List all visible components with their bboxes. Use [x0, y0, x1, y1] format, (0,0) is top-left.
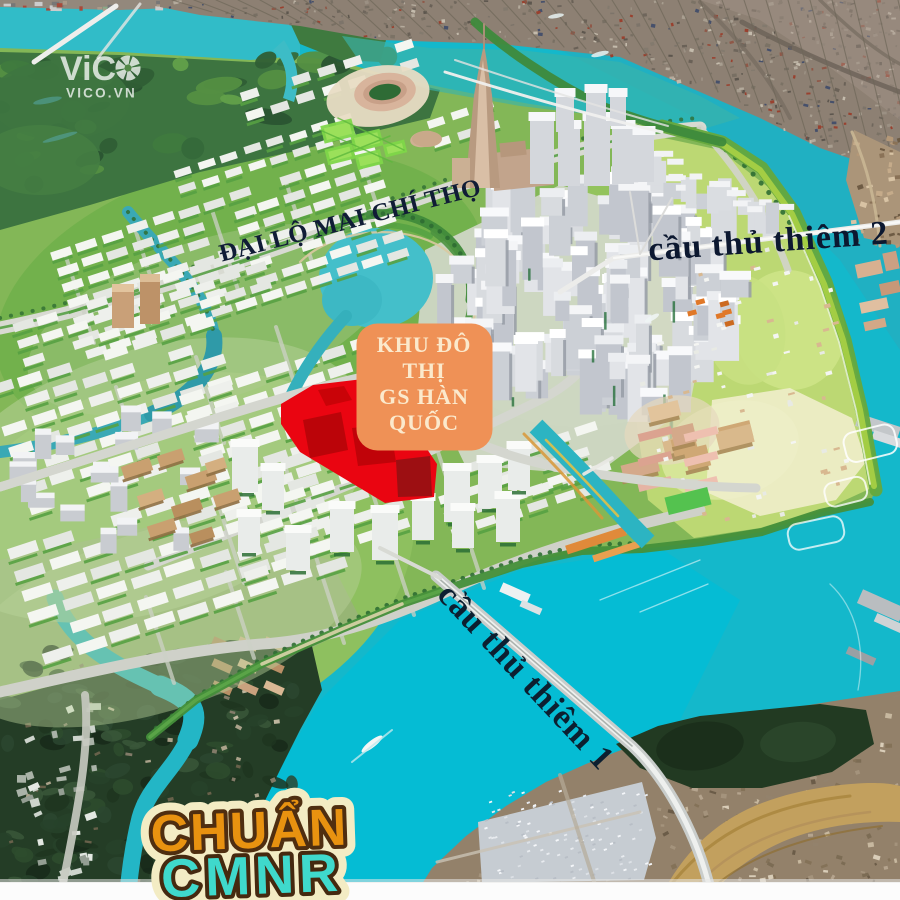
svg-text:VICO.VN: VICO.VN [66, 86, 137, 101]
svg-text:QUỐC: QUỐC [389, 410, 459, 435]
svg-text:GS HÀN: GS HÀN [379, 384, 469, 409]
svg-text:THỊ: THỊ [402, 358, 445, 383]
svg-text:CMNR: CMNR [160, 843, 344, 900]
svg-text:KHU ĐÔ: KHU ĐÔ [377, 332, 472, 357]
svg-text:ViC: ViC [60, 50, 116, 88]
